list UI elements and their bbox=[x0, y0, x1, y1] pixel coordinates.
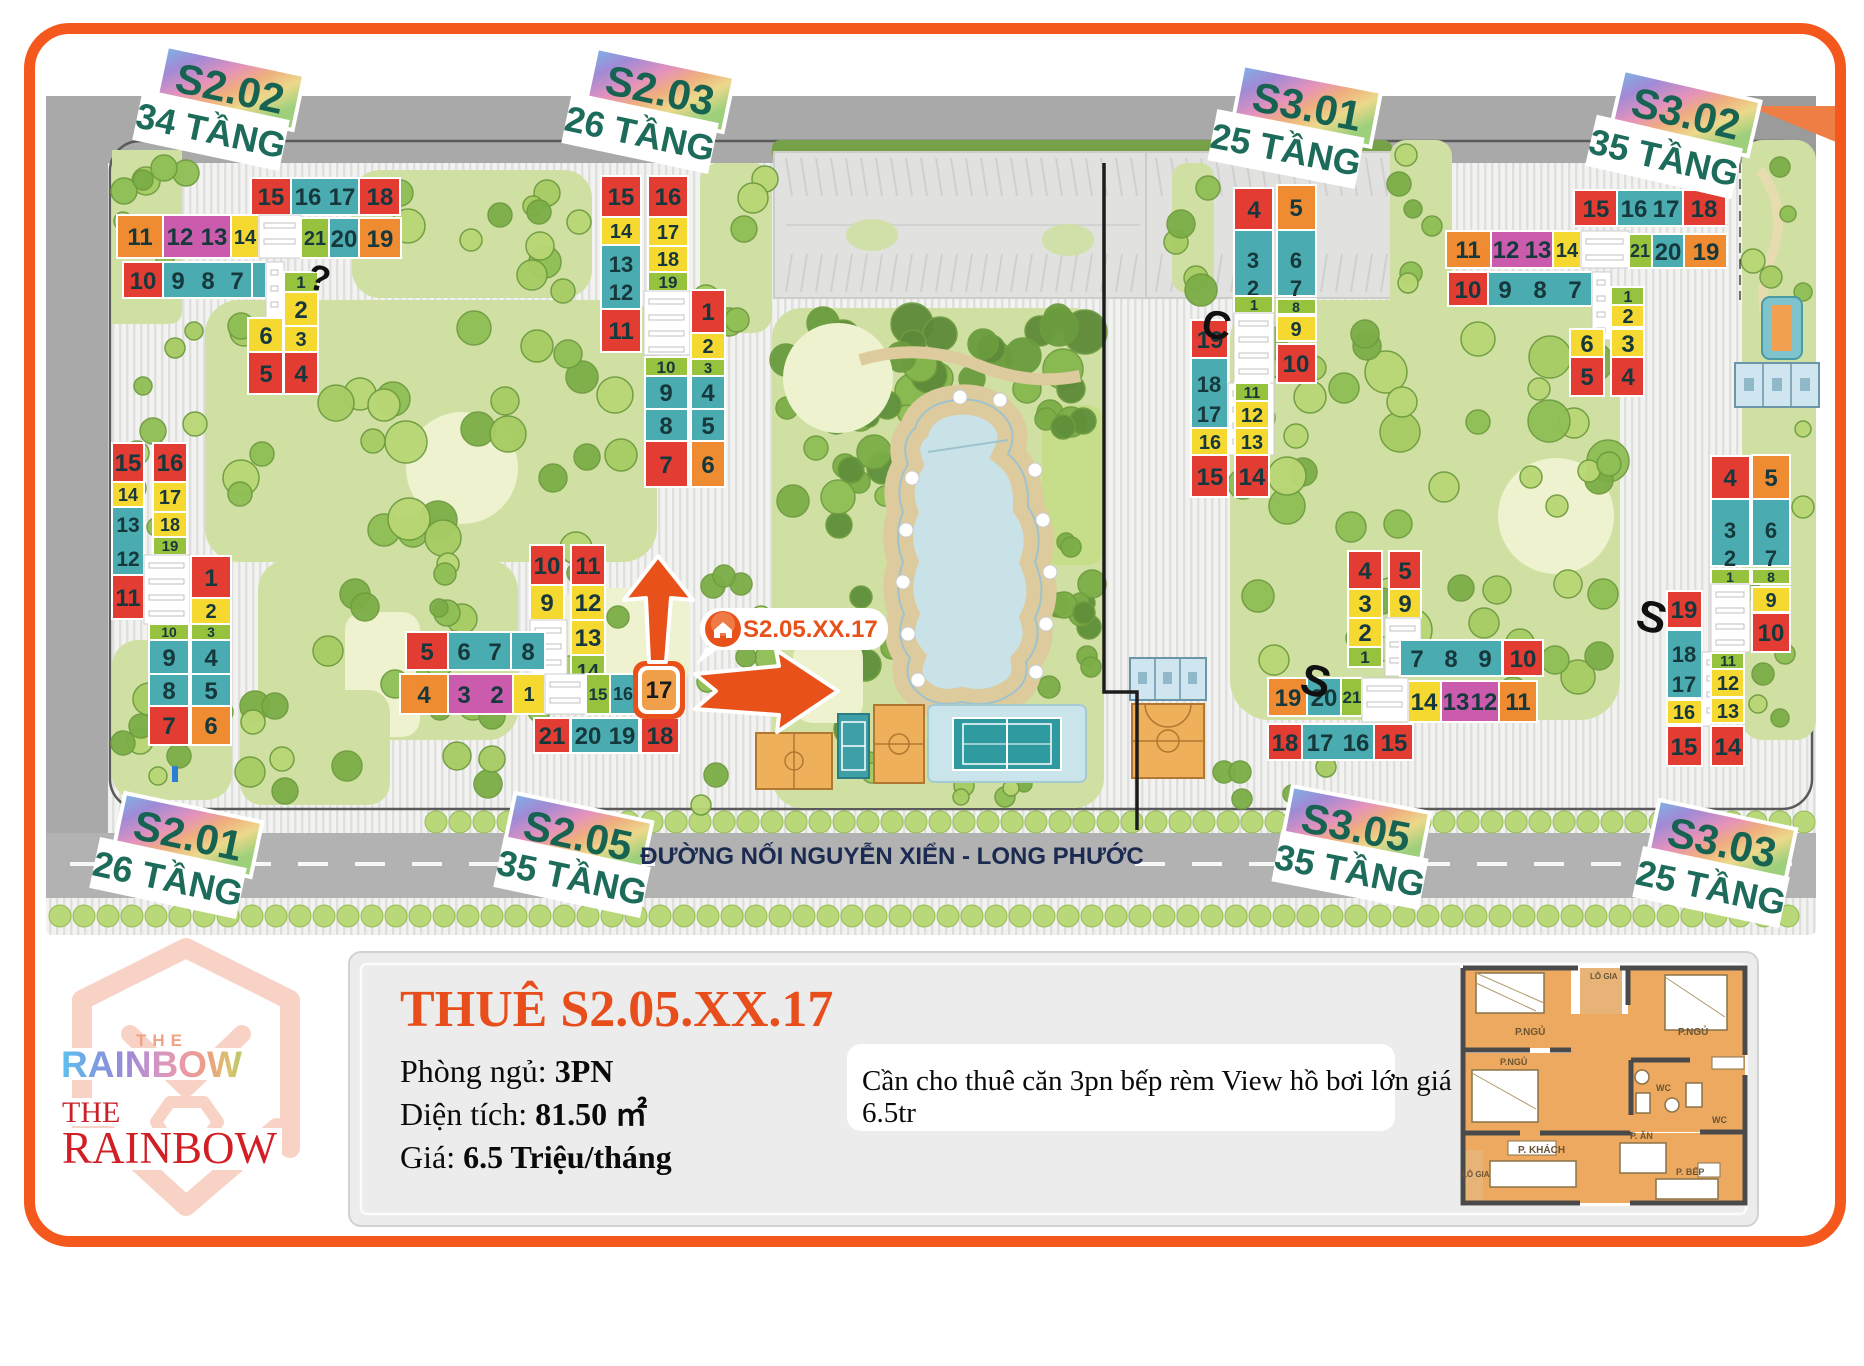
svg-text:15: 15 bbox=[608, 184, 635, 211]
svg-text:9: 9 bbox=[1398, 591, 1411, 618]
svg-text:3: 3 bbox=[207, 624, 215, 640]
svg-text:3: 3 bbox=[704, 360, 712, 377]
svg-text:9: 9 bbox=[1765, 590, 1776, 612]
svg-text:4: 4 bbox=[1247, 197, 1261, 224]
svg-text:17: 17 bbox=[1307, 730, 1334, 757]
svg-text:8: 8 bbox=[162, 678, 175, 705]
svg-text:3: 3 bbox=[1621, 331, 1634, 358]
svg-text:17: 17 bbox=[646, 677, 673, 704]
svg-text:8: 8 bbox=[1292, 299, 1300, 315]
svg-text:9: 9 bbox=[1290, 319, 1301, 341]
svg-text:15: 15 bbox=[115, 450, 142, 477]
svg-text:S2.05.XX.17: S2.05.XX.17 bbox=[743, 616, 878, 643]
svg-text:4: 4 bbox=[1621, 364, 1635, 391]
svg-text:LÔ GIA: LÔ GIA bbox=[1590, 972, 1618, 981]
svg-text:16: 16 bbox=[1673, 702, 1695, 724]
svg-text:8: 8 bbox=[659, 413, 672, 440]
svg-text:14: 14 bbox=[610, 221, 633, 243]
svg-text:8: 8 bbox=[521, 639, 534, 666]
svg-text:1: 1 bbox=[1360, 648, 1369, 667]
svg-text:5: 5 bbox=[1580, 364, 1593, 391]
svg-text:6: 6 bbox=[1765, 518, 1777, 543]
svg-text:WC: WC bbox=[1712, 1115, 1727, 1125]
svg-text:11: 11 bbox=[115, 585, 140, 612]
svg-text:3: 3 bbox=[1724, 518, 1736, 543]
svg-text:4: 4 bbox=[294, 361, 308, 388]
svg-text:11: 11 bbox=[1455, 237, 1480, 264]
svg-text:18: 18 bbox=[1197, 372, 1221, 397]
svg-text:21: 21 bbox=[304, 228, 326, 250]
svg-text:14: 14 bbox=[1239, 464, 1266, 491]
svg-text:16: 16 bbox=[295, 184, 322, 211]
svg-text:6: 6 bbox=[1580, 331, 1593, 358]
svg-text:LÔ GIA: LÔ GIA bbox=[1462, 1170, 1490, 1179]
svg-text:21: 21 bbox=[539, 723, 566, 750]
svg-text:11: 11 bbox=[127, 224, 152, 251]
svg-text:14: 14 bbox=[234, 227, 257, 249]
svg-text:6: 6 bbox=[1290, 248, 1302, 273]
svg-text:17: 17 bbox=[1653, 196, 1680, 223]
svg-text:5: 5 bbox=[1398, 558, 1411, 585]
svg-text:12: 12 bbox=[116, 548, 139, 571]
svg-text:Phòng ngủ: 3PN: Phòng ngủ: 3PN bbox=[400, 1053, 613, 1089]
svg-text:19: 19 bbox=[367, 226, 394, 253]
svg-text:19: 19 bbox=[162, 538, 179, 555]
svg-text:13: 13 bbox=[575, 625, 602, 652]
svg-text:10: 10 bbox=[534, 553, 561, 580]
svg-text:21: 21 bbox=[1343, 688, 1362, 707]
svg-text:20: 20 bbox=[331, 226, 358, 253]
svg-text:RAINBOW: RAINBOW bbox=[62, 1123, 278, 1173]
svg-text:4: 4 bbox=[1358, 558, 1372, 585]
svg-text:P.NGỦ: P.NGỦ bbox=[1515, 1025, 1545, 1038]
svg-text:11: 11 bbox=[1505, 689, 1530, 716]
svg-text:10: 10 bbox=[1455, 277, 1482, 304]
svg-text:Diện tích: 81.50 ㎡: Diện tích: 81.50 ㎡ bbox=[400, 1096, 647, 1132]
svg-text:3: 3 bbox=[1358, 591, 1371, 618]
svg-text:6: 6 bbox=[701, 452, 714, 479]
svg-text:13: 13 bbox=[1525, 237, 1552, 264]
svg-text:7: 7 bbox=[1410, 646, 1423, 673]
svg-text:16: 16 bbox=[157, 450, 184, 477]
svg-text:19: 19 bbox=[1693, 239, 1720, 266]
svg-text:13: 13 bbox=[609, 252, 633, 277]
svg-text:2: 2 bbox=[205, 601, 216, 623]
svg-text:14: 14 bbox=[1411, 689, 1438, 716]
svg-text:17: 17 bbox=[657, 222, 679, 244]
svg-text:16: 16 bbox=[1199, 432, 1221, 454]
svg-text:8: 8 bbox=[1533, 277, 1546, 304]
svg-text:THUÊ S2.05.XX.17: THUÊ S2.05.XX.17 bbox=[400, 980, 833, 1038]
svg-text:20: 20 bbox=[575, 723, 602, 750]
svg-text:5: 5 bbox=[259, 361, 272, 388]
svg-text:15: 15 bbox=[258, 184, 285, 211]
svg-text:5: 5 bbox=[1289, 195, 1302, 222]
svg-text:P.NGỦ: P.NGỦ bbox=[1500, 1056, 1527, 1067]
svg-text:9: 9 bbox=[540, 590, 553, 617]
svg-text:4: 4 bbox=[1723, 465, 1737, 492]
svg-text:20: 20 bbox=[1655, 239, 1682, 266]
svg-text:15: 15 bbox=[1583, 196, 1610, 223]
svg-text:12: 12 bbox=[609, 280, 633, 305]
svg-text:12: 12 bbox=[575, 590, 602, 617]
svg-text:17: 17 bbox=[1672, 672, 1696, 697]
svg-text:11: 11 bbox=[575, 553, 600, 580]
svg-text:1: 1 bbox=[1624, 289, 1633, 306]
svg-text:19: 19 bbox=[1671, 597, 1698, 624]
svg-text:6: 6 bbox=[204, 713, 217, 740]
svg-text:13: 13 bbox=[116, 514, 139, 537]
svg-text:P.NGỦ: P.NGỦ bbox=[1678, 1025, 1708, 1038]
svg-text:17: 17 bbox=[1197, 402, 1221, 427]
svg-text:14: 14 bbox=[1715, 734, 1742, 761]
svg-text:15: 15 bbox=[1671, 734, 1698, 761]
svg-text:19: 19 bbox=[609, 723, 636, 750]
svg-text:2: 2 bbox=[294, 297, 307, 324]
svg-text:21: 21 bbox=[1630, 241, 1650, 261]
svg-text:17: 17 bbox=[159, 487, 181, 509]
svg-text:P. ĂN: P. ĂN bbox=[1630, 1131, 1653, 1141]
svg-text:WC: WC bbox=[1656, 1083, 1671, 1093]
svg-text:19: 19 bbox=[659, 273, 678, 292]
svg-text:4: 4 bbox=[417, 682, 431, 709]
svg-text:5: 5 bbox=[420, 639, 433, 666]
svg-text:5: 5 bbox=[204, 678, 217, 705]
svg-text:ĐƯỜNG NỐI NGUYỄN XIỂN - LONG P: ĐƯỜNG NỐI NGUYỄN XIỂN - LONG PHƯỚC bbox=[640, 841, 1143, 870]
svg-text:Giá: 6.5 Triệu/tháng: Giá: 6.5 Triệu/tháng bbox=[400, 1139, 672, 1175]
svg-text:9: 9 bbox=[162, 645, 175, 672]
svg-text:10: 10 bbox=[657, 358, 676, 377]
svg-text:10: 10 bbox=[1510, 646, 1537, 673]
svg-text:12: 12 bbox=[167, 224, 194, 251]
svg-text:6.5tr: 6.5tr bbox=[862, 1097, 916, 1129]
svg-text:7: 7 bbox=[230, 268, 243, 295]
svg-text:1: 1 bbox=[1726, 569, 1734, 585]
svg-text:14: 14 bbox=[1556, 240, 1579, 262]
svg-text:7: 7 bbox=[1765, 546, 1777, 571]
svg-text:1: 1 bbox=[523, 684, 534, 706]
svg-text:P. KHÁCH: P. KHÁCH bbox=[1518, 1143, 1565, 1156]
svg-text:16: 16 bbox=[1343, 730, 1370, 757]
svg-text:7: 7 bbox=[1568, 277, 1581, 304]
svg-text:9: 9 bbox=[1498, 277, 1511, 304]
svg-text:18: 18 bbox=[647, 723, 674, 750]
svg-text:2: 2 bbox=[1724, 546, 1736, 571]
svg-text:P. BẾP: P. BẾP bbox=[1676, 1167, 1704, 1177]
svg-text:RAINBOW: RAINBOW bbox=[61, 1044, 242, 1085]
svg-text:8: 8 bbox=[201, 268, 214, 295]
svg-text:10: 10 bbox=[161, 624, 177, 640]
svg-text:3: 3 bbox=[295, 329, 306, 351]
svg-text:6: 6 bbox=[259, 323, 272, 350]
svg-text:13: 13 bbox=[1717, 701, 1739, 723]
svg-text:12: 12 bbox=[1493, 237, 1520, 264]
svg-text:15: 15 bbox=[1381, 730, 1408, 757]
svg-text:18: 18 bbox=[1272, 730, 1299, 757]
svg-text:15: 15 bbox=[1197, 464, 1224, 491]
svg-text:1: 1 bbox=[1250, 297, 1258, 314]
svg-text:4: 4 bbox=[204, 645, 218, 672]
svg-text:4: 4 bbox=[701, 380, 715, 407]
svg-text:18: 18 bbox=[160, 515, 180, 535]
svg-text:10: 10 bbox=[130, 268, 157, 295]
svg-text:11: 11 bbox=[1244, 385, 1261, 402]
svg-text:10: 10 bbox=[1758, 620, 1785, 647]
svg-text:7: 7 bbox=[659, 452, 672, 479]
svg-text:5: 5 bbox=[701, 413, 714, 440]
svg-text:2: 2 bbox=[1358, 620, 1371, 647]
svg-text:12: 12 bbox=[1717, 673, 1739, 695]
svg-text:10: 10 bbox=[1283, 351, 1310, 378]
svg-text:1: 1 bbox=[296, 273, 305, 292]
svg-text:2: 2 bbox=[1622, 306, 1633, 328]
svg-text:18: 18 bbox=[1691, 196, 1718, 223]
svg-text:3: 3 bbox=[457, 682, 470, 709]
svg-text:18: 18 bbox=[367, 184, 394, 211]
svg-text:8: 8 bbox=[1767, 569, 1775, 585]
svg-text:12: 12 bbox=[1471, 689, 1498, 716]
svg-text:1: 1 bbox=[701, 299, 714, 326]
svg-text:11: 11 bbox=[1720, 653, 1736, 670]
svg-text:7: 7 bbox=[488, 639, 501, 666]
svg-text:13: 13 bbox=[201, 224, 228, 251]
svg-text:7: 7 bbox=[162, 713, 175, 740]
svg-text:1: 1 bbox=[204, 565, 217, 592]
svg-text:14: 14 bbox=[118, 485, 138, 505]
svg-text:5: 5 bbox=[1764, 465, 1777, 492]
svg-text:9: 9 bbox=[659, 380, 672, 407]
svg-text:12: 12 bbox=[1241, 405, 1263, 427]
svg-text:2: 2 bbox=[490, 682, 503, 709]
svg-text:13: 13 bbox=[1241, 432, 1263, 454]
svg-text:3: 3 bbox=[1247, 248, 1259, 273]
svg-text:Cần cho thuê căn 3pn bếp rèm V: Cần cho thuê căn 3pn bếp rèm View hồ bơi… bbox=[862, 1065, 1452, 1097]
svg-text:16: 16 bbox=[1621, 196, 1648, 223]
svg-text:13: 13 bbox=[1443, 689, 1470, 716]
svg-text:18: 18 bbox=[1672, 642, 1696, 667]
svg-text:6: 6 bbox=[457, 639, 470, 666]
svg-text:18: 18 bbox=[657, 249, 679, 271]
svg-text:7: 7 bbox=[1290, 276, 1302, 301]
svg-text:16: 16 bbox=[655, 184, 682, 211]
svg-text:9: 9 bbox=[171, 268, 184, 295]
svg-text:8: 8 bbox=[1444, 646, 1457, 673]
svg-text:11: 11 bbox=[608, 318, 633, 345]
svg-text:15: 15 bbox=[589, 685, 608, 704]
svg-text:17: 17 bbox=[329, 184, 356, 211]
svg-text:16: 16 bbox=[613, 684, 633, 704]
svg-text:2: 2 bbox=[702, 336, 713, 358]
svg-text:9: 9 bbox=[1478, 646, 1491, 673]
